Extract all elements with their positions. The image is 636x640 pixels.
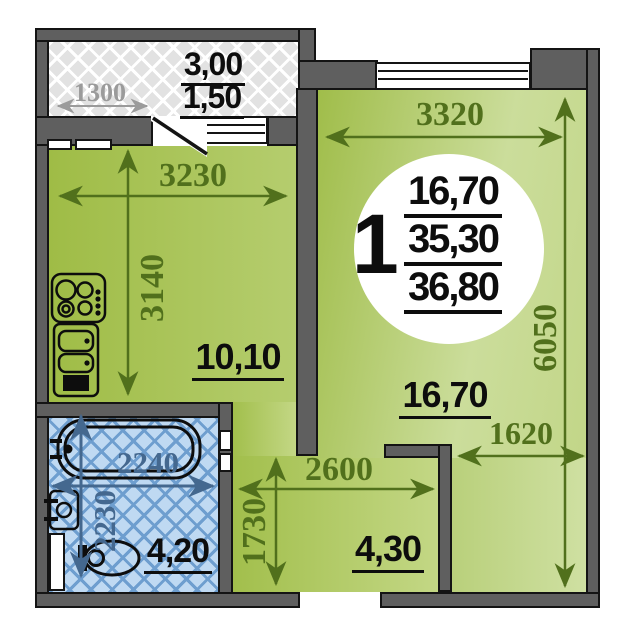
- kitchen-width-dimension: 3230: [133, 159, 253, 193]
- wall-bottom-left: [35, 592, 300, 608]
- wall-living-top-step: [298, 60, 378, 90]
- bathroom-door-jamb: [219, 453, 232, 472]
- kitchen-hall-strip-floor: [233, 402, 296, 458]
- hallway-width-dimension: 2600: [284, 453, 394, 487]
- hallway-area-label: 4,30: [333, 531, 443, 573]
- hallway-depth-dimension: 1730: [238, 477, 272, 587]
- living-window-icon: [376, 63, 530, 89]
- bathroom-area-label: 4,20: [128, 534, 228, 574]
- kitchen-depth-dimension: 3140: [136, 228, 170, 348]
- living-depth-dimension: 6050: [529, 278, 563, 398]
- wall-left: [35, 28, 49, 608]
- bathroom-depth-dimension: 2230: [89, 471, 121, 571]
- wall-bathroom-top: [35, 402, 233, 418]
- badge-living-area-value: 16,70: [398, 171, 508, 218]
- living-room-alcove-floor: [452, 458, 586, 592]
- wall-kitchen-living-divider: [296, 88, 318, 456]
- balcony-area-counted-label: 1,50: [167, 81, 257, 119]
- wall-niche: [49, 533, 65, 591]
- wall-balcony-top: [35, 28, 316, 42]
- kitchen-sill-block: [47, 139, 72, 150]
- badge-total-area-value: 35,30: [398, 219, 508, 266]
- room-count: 1: [352, 202, 396, 286]
- living-width-dimension: 3320: [390, 98, 510, 132]
- alcove-width-dimension: 1620: [471, 417, 571, 449]
- floor-plan: 1300 3230 3140 3320 6050 1620 2600 1730 …: [0, 0, 636, 640]
- balcony-window-icon: [205, 117, 267, 143]
- wall-right: [586, 48, 600, 606]
- bathroom-door-jamb: [219, 430, 232, 451]
- kitchen-area-label: 10,10: [183, 339, 293, 381]
- badge-overall-area-value: 36,80: [398, 267, 508, 314]
- balcony-width-dimension: 1300: [55, 80, 145, 106]
- wall-bottom-right: [380, 592, 600, 608]
- kitchen-sill-block: [75, 139, 112, 150]
- living-area-label: 16,70: [385, 377, 505, 419]
